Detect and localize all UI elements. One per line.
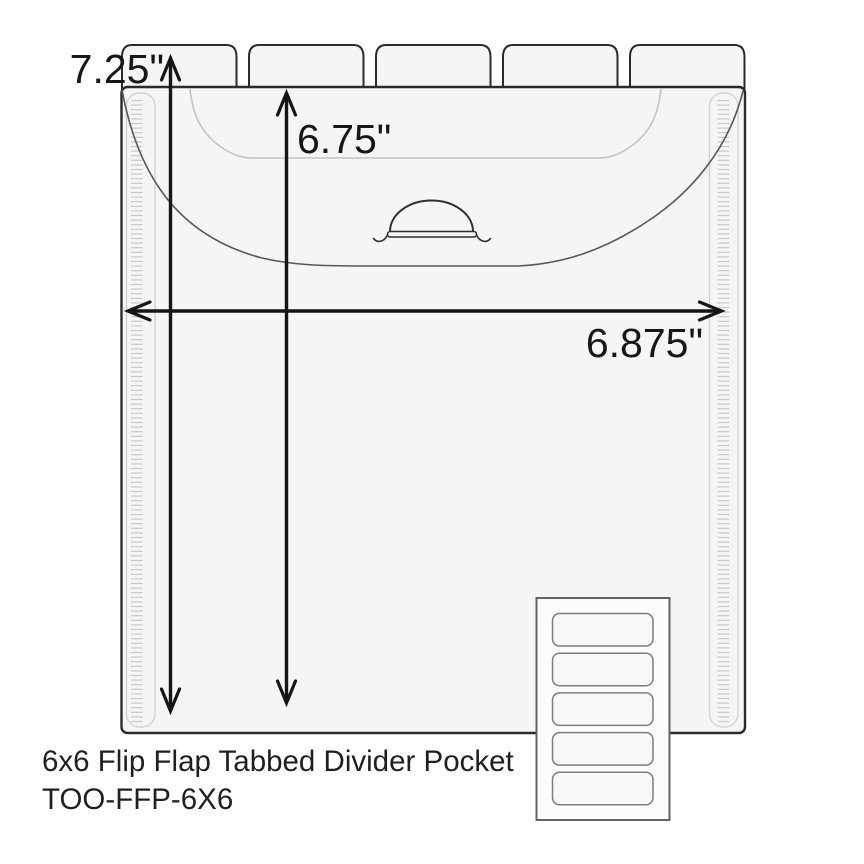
tab-layout-inset [537,598,670,820]
inset-slot [553,772,654,805]
inset-slots [553,614,654,805]
product-dimension-diagram: 7.25" 6.75" 6.875" 6x6 Flip Flap Tabbed … [0,0,864,864]
inset-slot [553,693,654,726]
inset-slot [553,733,654,766]
product-title: 6x6 Flip Flap Tabbed Divider Pocket [42,745,514,778]
diagram-canvas: 7.25" 6.75" 6.875" 6x6 Flip Flap Tabbed … [0,0,864,864]
inset-slot [553,614,654,647]
pocket-height-label: 6.75" [297,116,391,162]
width-label: 6.875" [586,320,703,366]
product-sku: TOO-FFP-6X6 [42,783,233,816]
total-height-label: 7.25" [70,46,164,92]
inset-slot [553,653,654,686]
handle-slot [388,232,477,238]
